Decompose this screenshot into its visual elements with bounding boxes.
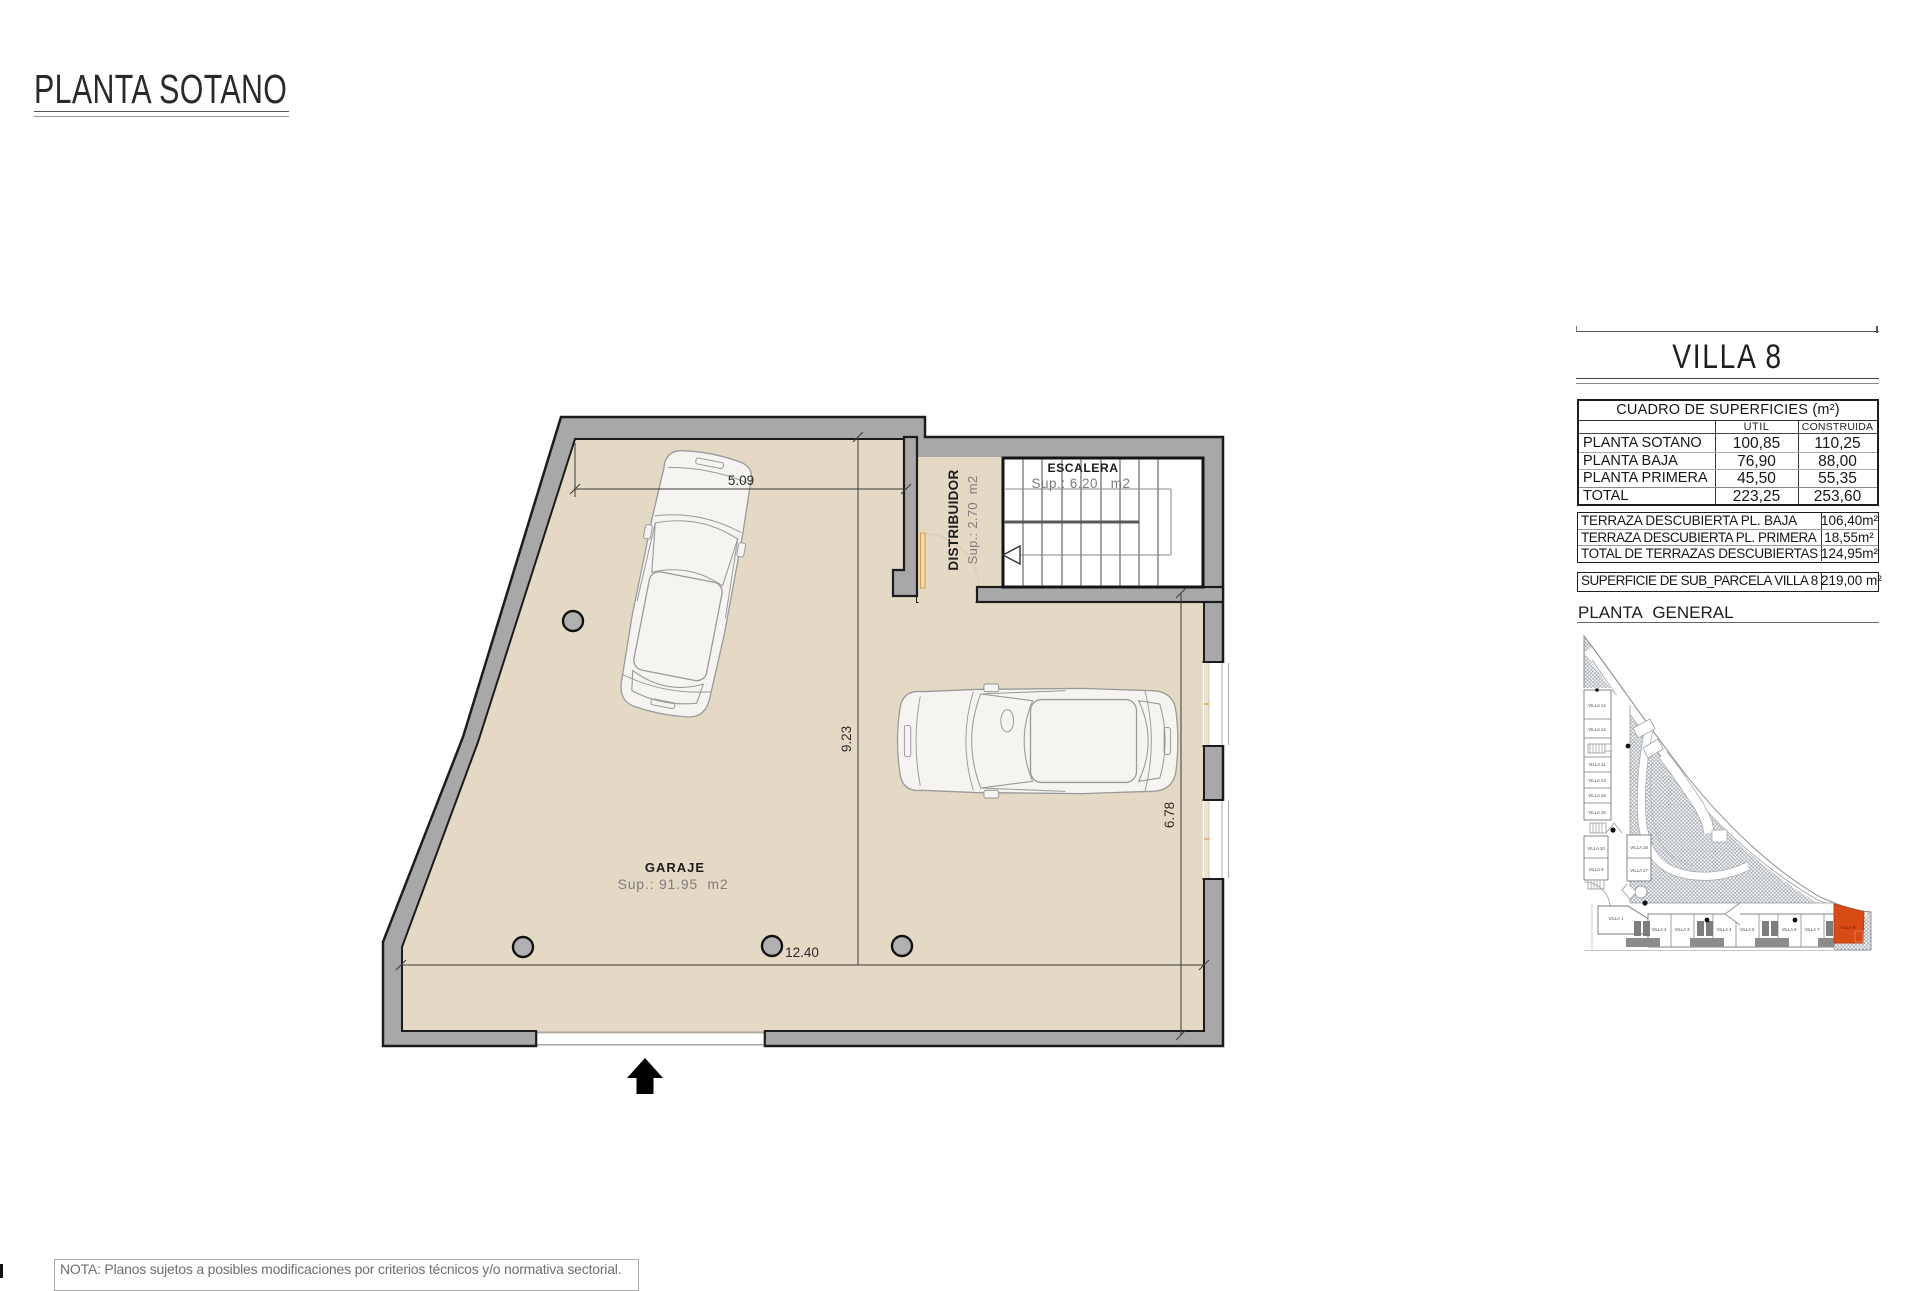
svg-text:DISTRIBUIDOR: DISTRIBUIDOR [946, 469, 961, 570]
svg-text:12.40: 12.40 [785, 945, 819, 960]
svg-text:VILLA 18: VILLA 18 [1630, 845, 1648, 850]
svg-text:VILLA 4: VILLA 4 [1716, 927, 1732, 932]
svg-text:VILLA 2: VILLA 2 [1651, 927, 1667, 932]
svg-text:6.78: 6.78 [1162, 802, 1177, 828]
svg-text:VILLA 7: VILLA 7 [1804, 927, 1820, 932]
svg-text:Sup.: 2.70 m2: Sup.: 2.70 m2 [965, 476, 980, 565]
svg-text:VILLA 15: VILLA 15 [1588, 793, 1606, 798]
svg-text:VILLA 1: VILLA 1 [1608, 916, 1624, 921]
svg-text:Sup.: 6.20 m2: Sup.: 6.20 m2 [1031, 476, 1130, 491]
svg-text:VILLA 11: VILLA 11 [1588, 762, 1606, 767]
svg-text:VILLA 6: VILLA 6 [1781, 927, 1797, 932]
svg-text:VILLA 5: VILLA 5 [1739, 927, 1755, 932]
svg-text:9.23: 9.23 [839, 726, 854, 752]
svg-text:VILLA 10: VILLA 10 [1587, 846, 1605, 851]
svg-text:VILLA 13: VILLA 13 [1588, 778, 1606, 783]
svg-text:5.09: 5.09 [728, 473, 754, 488]
svg-text:GARAJE: GARAJE [645, 860, 705, 875]
svg-text:VILLA 17: VILLA 17 [1630, 868, 1648, 873]
svg-text:VILLA 12: VILLA 12 [1588, 727, 1606, 732]
svg-text:VILLA 16: VILLA 16 [1588, 810, 1606, 815]
svg-text:VILLA 9: VILLA 9 [1588, 867, 1604, 872]
svg-text:VILLA 14: VILLA 14 [1588, 703, 1606, 708]
svg-text:VILLA 8: VILLA 8 [1840, 925, 1856, 930]
svg-text:ESCALERA: ESCALERA [1047, 461, 1118, 475]
svg-text:Sup.: 91.95 m2: Sup.: 91.95 m2 [618, 876, 729, 892]
svg-text:VILLA 3: VILLA 3 [1674, 927, 1690, 932]
